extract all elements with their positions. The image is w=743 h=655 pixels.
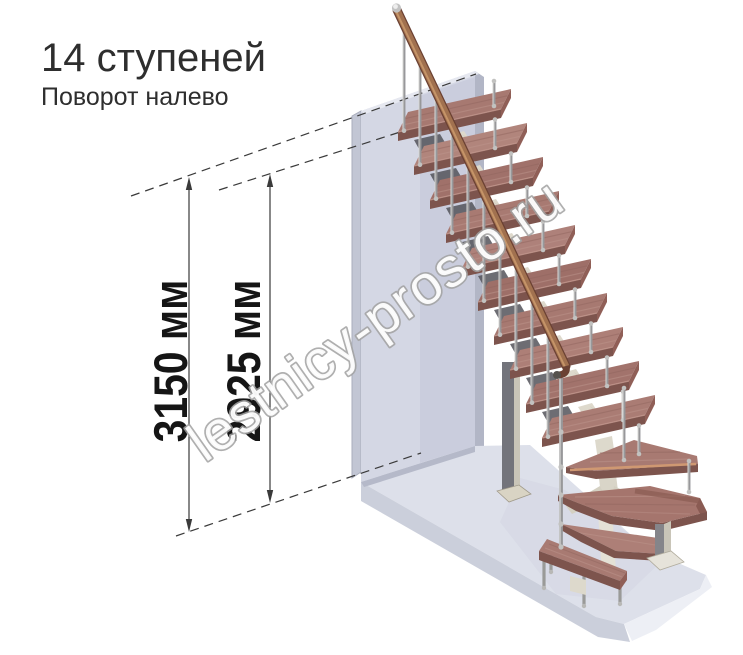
svg-text:Поворот налево: Поворот налево [41, 83, 229, 111]
svg-text:14 ступеней: 14 ступеней [41, 36, 266, 80]
